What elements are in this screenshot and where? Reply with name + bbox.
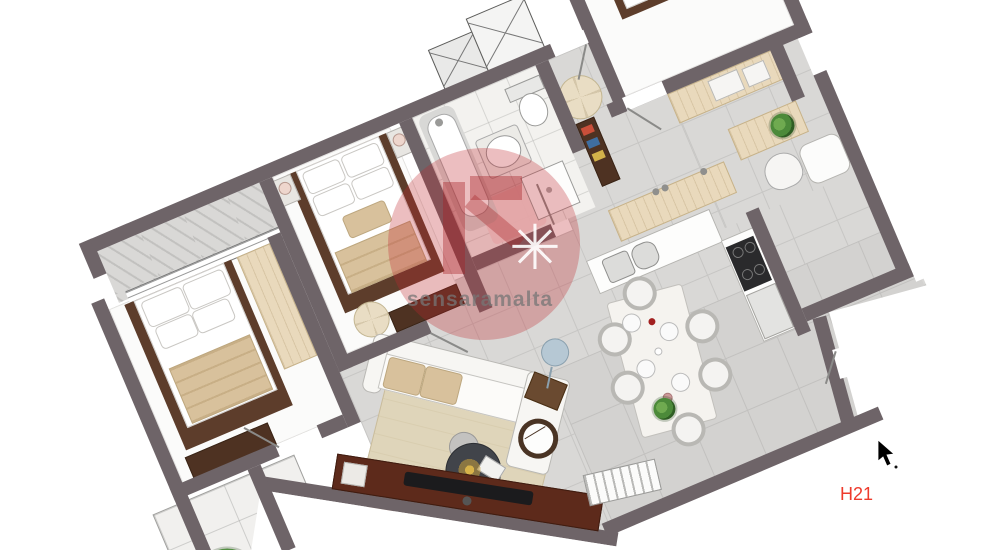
cursor-arrow-icon bbox=[876, 440, 902, 470]
sideboard-decor bbox=[341, 462, 368, 487]
watermark-asterisk-icon: ✳ bbox=[500, 214, 570, 284]
floorplan-screenshot: ✳ sensaramalta H21 bbox=[0, 0, 1000, 550]
watermark-logo-mark bbox=[443, 182, 465, 274]
unit-label: H21 bbox=[840, 484, 900, 505]
watermark-text: sensaramalta bbox=[360, 288, 600, 312]
